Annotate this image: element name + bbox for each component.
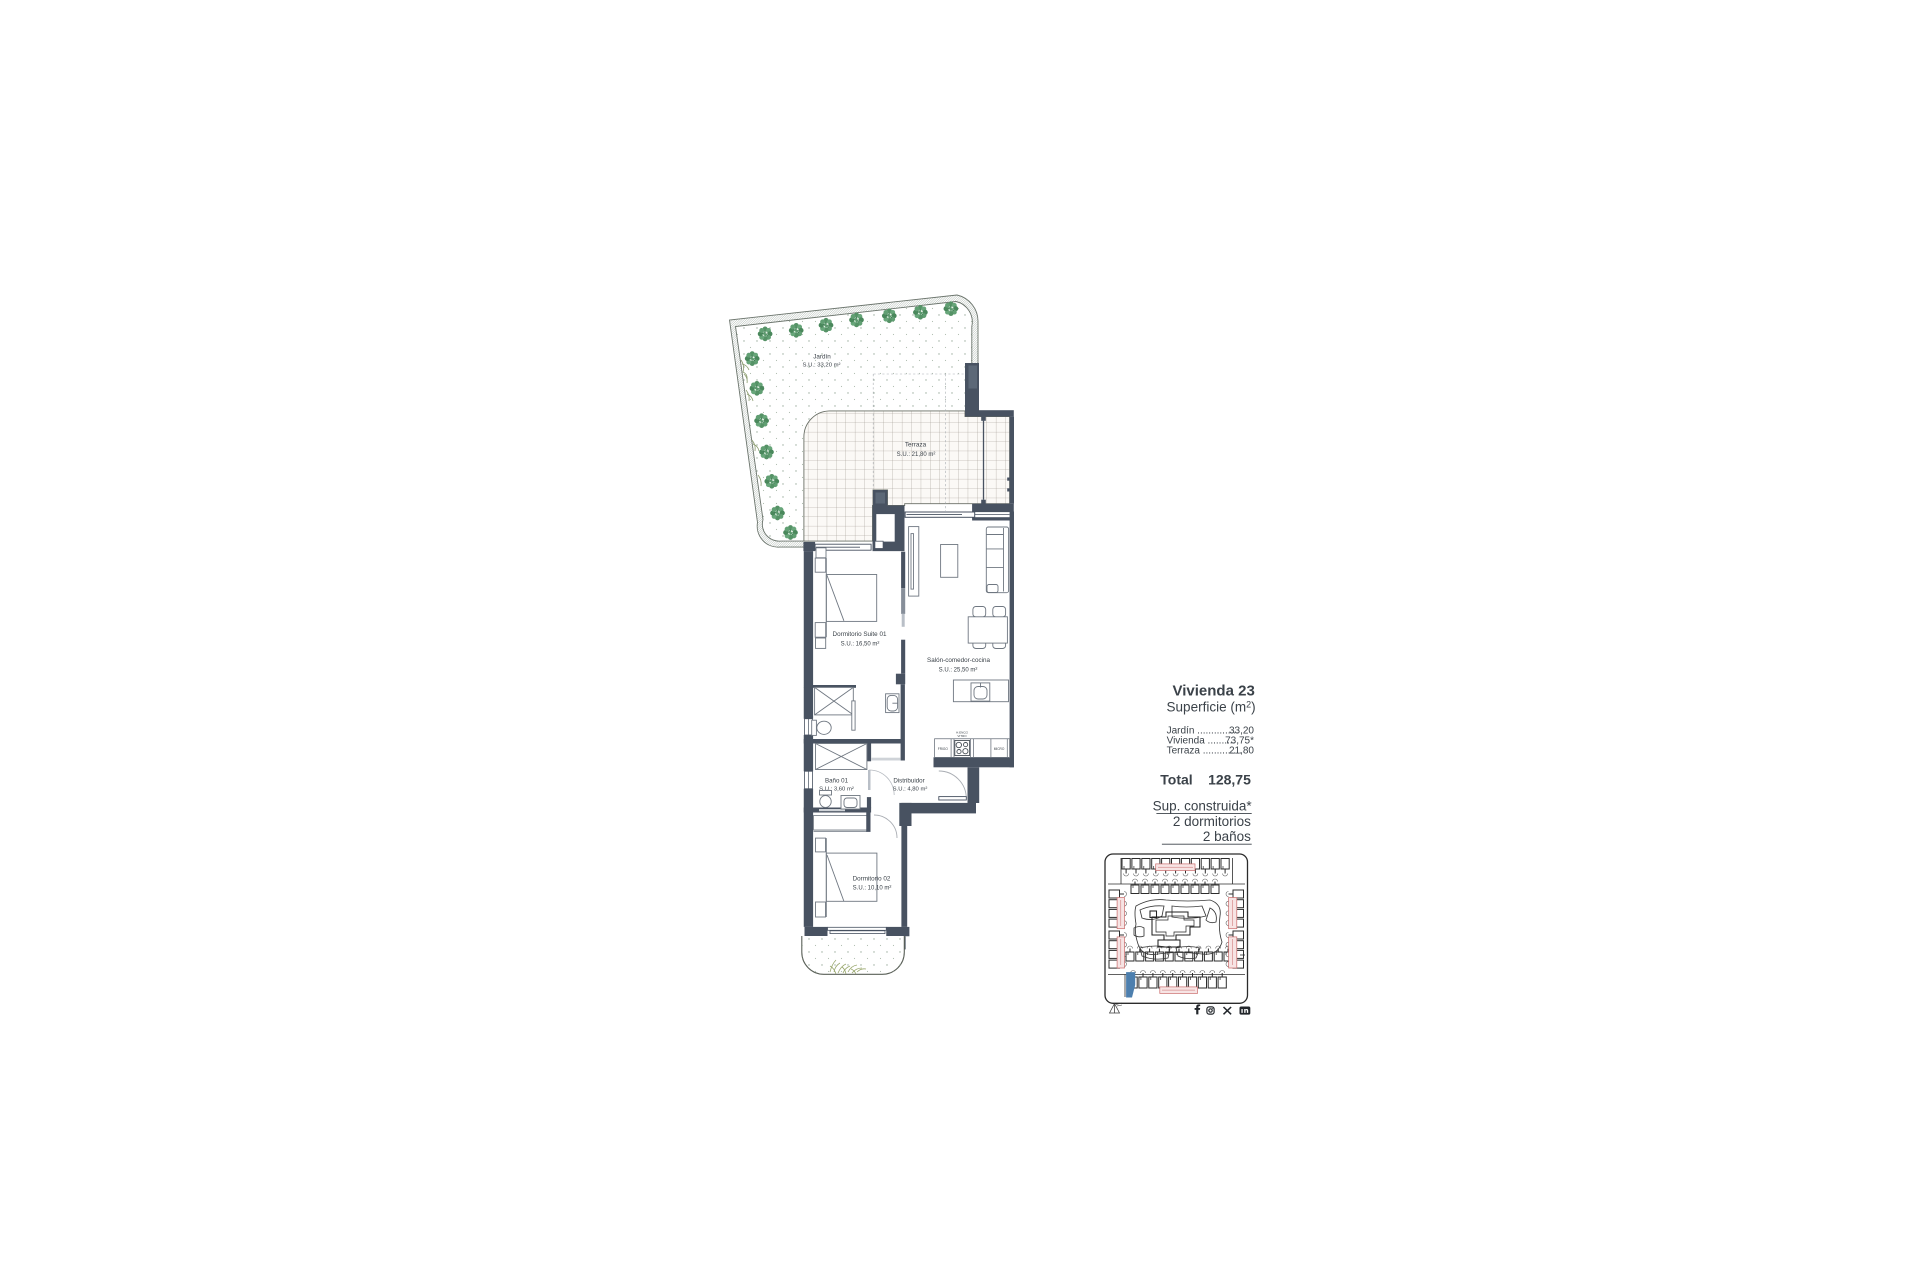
- svg-text:S.U.: 10,10 m²: S.U.: 10,10 m²: [853, 886, 892, 892]
- svg-text:Total: Total: [1160, 772, 1192, 788]
- svg-text:Terraza: Terraza: [905, 442, 927, 449]
- svg-text:FRIGO: FRIGO: [938, 747, 949, 751]
- svg-text:Dormitorio 02: Dormitorio 02: [853, 876, 891, 883]
- svg-text:21,80: 21,80: [1229, 745, 1254, 756]
- svg-text:Dormitorio Suite 01: Dormitorio Suite 01: [833, 631, 887, 638]
- svg-text:2 baños: 2 baños: [1203, 829, 1251, 844]
- svg-text:S.U.: 33,20 m²: S.U.: 33,20 m²: [803, 363, 841, 369]
- svg-text:Superficie (m2): Superficie (m2): [1167, 700, 1256, 715]
- svg-text:MICRO: MICRO: [994, 747, 1005, 751]
- svg-text:Baño 01: Baño 01: [825, 778, 849, 785]
- svg-text:Salón-comedor-cocina: Salón-comedor-cocina: [927, 657, 990, 664]
- svg-text:Distribuidor: Distribuidor: [893, 778, 924, 785]
- svg-text:S.U.: 21,80 m²: S.U.: 21,80 m²: [897, 452, 936, 458]
- svg-text:Sup. construida*: Sup. construida*: [1153, 799, 1253, 814]
- svg-text:S.U.: 4,80 m²: S.U.: 4,80 m²: [893, 787, 928, 793]
- svg-text:S.U.: 16,50 m²: S.U.: 16,50 m²: [841, 642, 880, 648]
- svg-text:Jardín: Jardín: [813, 354, 831, 361]
- svg-text:S.U.: 25,50 m²: S.U.: 25,50 m²: [939, 668, 978, 674]
- svg-text:VITRO: VITRO: [957, 734, 967, 738]
- svg-text:128,75: 128,75: [1208, 772, 1251, 788]
- svg-text:Vivienda 23: Vivienda 23: [1173, 683, 1255, 700]
- svg-text:2 dormitorios: 2 dormitorios: [1173, 814, 1251, 829]
